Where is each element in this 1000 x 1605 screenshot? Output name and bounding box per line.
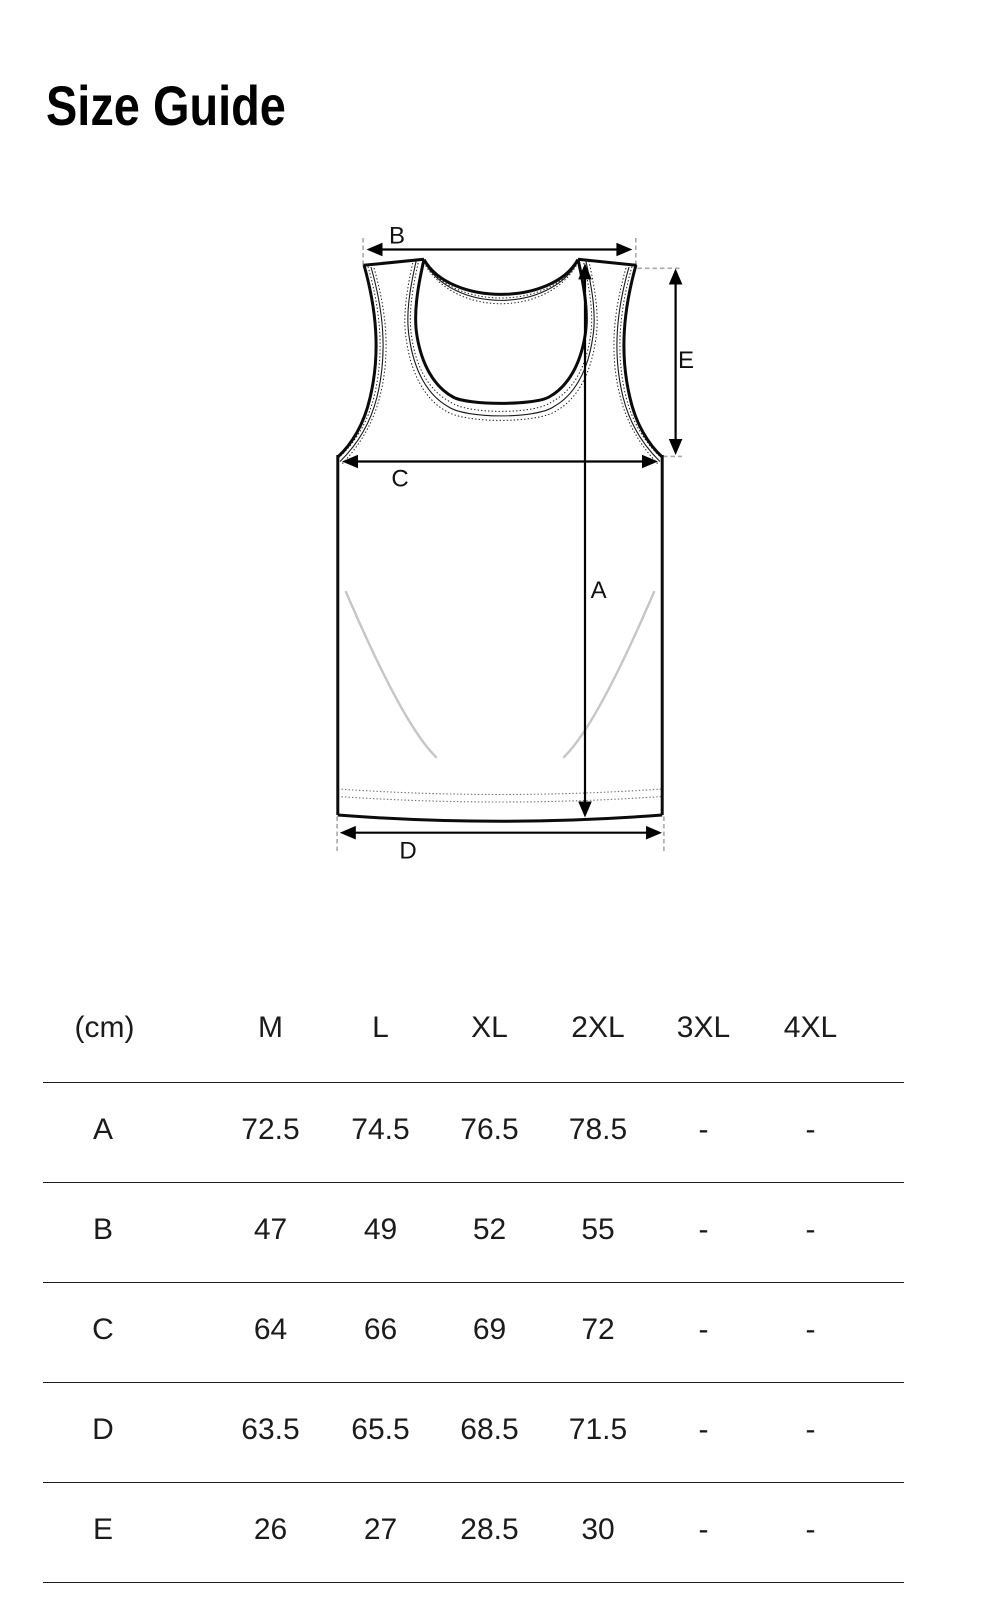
svg-text:E: E <box>678 347 694 374</box>
svg-text:D: D <box>399 838 416 865</box>
svg-text:C: C <box>391 466 408 493</box>
svg-text:B: B <box>389 223 405 250</box>
svg-text:A: A <box>591 577 607 604</box>
